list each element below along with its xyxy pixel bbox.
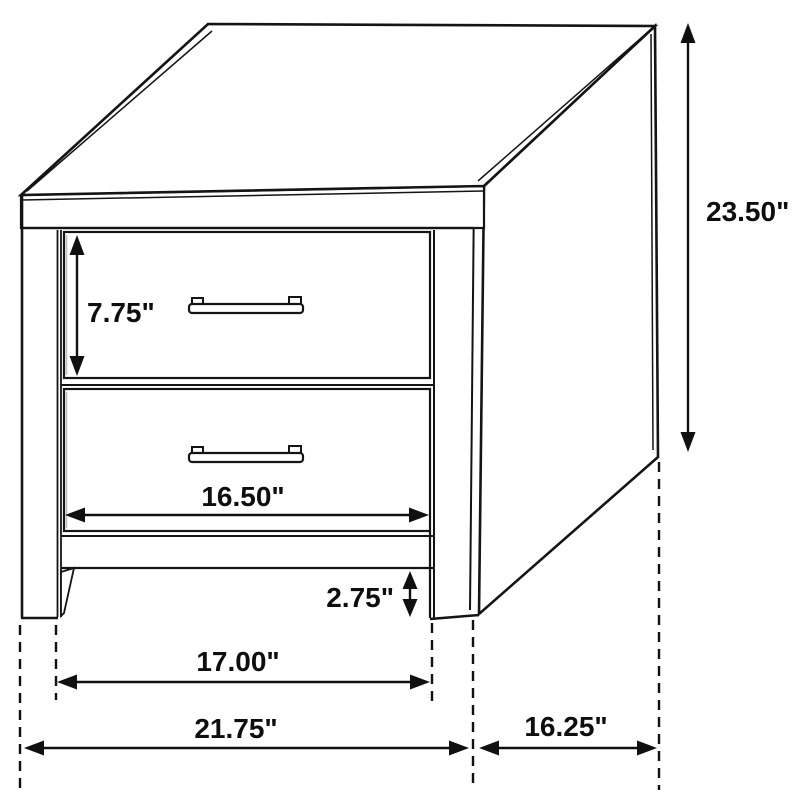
overall-height-arrowhead-bottom xyxy=(681,432,696,452)
drawer-height-label: 7.75" xyxy=(87,297,155,328)
inner-width-arrowhead-right xyxy=(410,675,430,690)
inner-width-arrowhead-left xyxy=(57,675,77,690)
depth-label: 16.25" xyxy=(524,711,607,742)
base-height-arrowhead-bottom xyxy=(403,599,418,617)
nightstand-dimension-diagram: 23.50" 7.75" 16.50" 2.75" 17.00" 21.75" xyxy=(0,0,800,800)
base-height-label: 2.75" xyxy=(326,582,394,613)
right-leg xyxy=(430,615,479,619)
diagram-canvas: 23.50" 7.75" 16.50" 2.75" 17.00" 21.75" xyxy=(0,0,800,800)
overall-width-arrowhead-left xyxy=(24,741,44,756)
overall-width-label: 21.75" xyxy=(194,713,277,744)
drawer-width-label: 16.50" xyxy=(201,481,284,512)
drawer-2-handle-bar xyxy=(189,453,303,462)
right-leg-bottom-edge xyxy=(430,615,479,619)
drawer-1-handle-bar xyxy=(189,304,303,313)
depth-arrowhead-right xyxy=(637,741,657,756)
overall-width-arrowhead-right xyxy=(449,741,469,756)
overall-height-arrowhead-top xyxy=(681,23,696,43)
dimension-inner-width: 17.00" xyxy=(57,646,430,690)
left-leg xyxy=(21,568,74,618)
base-height-arrowhead-top xyxy=(403,571,418,589)
dimension-depth: 16.25" xyxy=(479,711,657,756)
dimension-base-height: 2.75" xyxy=(326,571,417,617)
dimension-overall-width: 21.75" xyxy=(24,713,469,756)
dimension-overall-height: 23.50" xyxy=(681,23,790,452)
front-right-corner-inner-edge xyxy=(470,191,474,610)
inner-width-label: 17.00" xyxy=(196,646,279,677)
depth-arrowhead-left xyxy=(479,741,499,756)
left-leg-side-face xyxy=(61,568,74,616)
overall-height-label: 23.50" xyxy=(706,196,789,227)
